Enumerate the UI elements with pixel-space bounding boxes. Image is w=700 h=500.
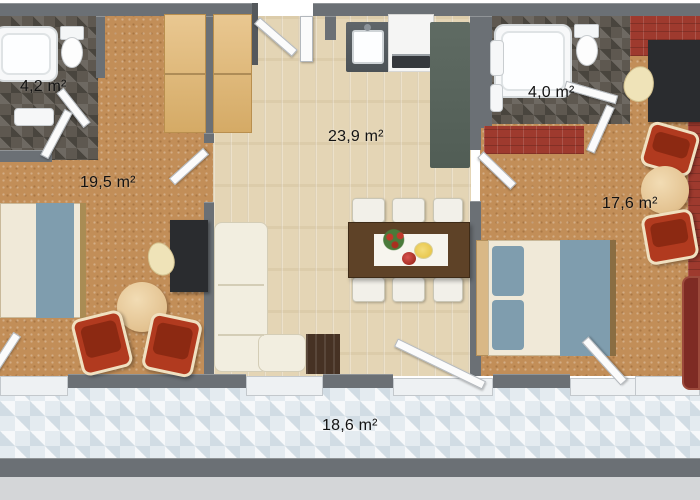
bowl-red [402,252,416,265]
terrace-window-sill-left [0,376,68,396]
bed-left-blanket [36,203,74,318]
sofa-seam-2 [218,334,264,336]
wall-bathL-right [96,16,105,78]
kitchen-faucet [364,24,371,31]
dining-chair-4 [352,277,385,302]
flower-bouquet [382,228,408,254]
wall-wardrobe-divider [206,16,213,133]
tv-cabinet [306,334,340,374]
room-label-bathroom-left: 4,2 m² [20,78,67,96]
sofa-cream-chaise [258,334,306,372]
wall-entry-stub [252,3,258,65]
washbasin-right-1 [490,40,504,76]
sofa-seam-1 [218,284,264,286]
dresser-right [648,40,700,122]
wall-living-bedR-upper [470,16,481,150]
dining-chair-2 [392,198,425,223]
bed-right-pillow-1 [492,246,524,296]
wall-bedL-living-upper [204,133,214,143]
dining-chair-5 [392,277,425,302]
wall-top-right [313,3,700,16]
room-label-bedroom-right: 17,6 m² [602,195,658,213]
desk-left [170,220,208,292]
exterior-ground [0,477,700,500]
wardrobe-left-2 [213,14,252,133]
bed-left-frame [80,203,86,318]
wall-terrace-1 [68,374,246,388]
dining-chair-6 [433,277,463,302]
wall-terrace-3 [493,374,570,388]
wardrobe-left-1 [164,14,206,133]
washbasin-left [14,108,54,126]
room-label-terrace: 18,6 m² [322,417,378,435]
terrace-window-sill-bedR [570,378,640,396]
wall-red-bathR-bottom [484,126,584,154]
wall-bottom [0,458,700,477]
kitchen-sink [352,30,384,64]
floor-plan: 4,2 m² 19,5 m² 23,9 m² 4,0 m² 17,6 m² 18… [0,0,700,500]
dining-chair-3 [433,198,463,223]
washbasin-right-2 [490,84,503,112]
plate-lemons [414,242,433,259]
bed-right-pillow-2 [492,300,524,350]
bathtub-left [0,26,58,82]
room-label-living-kitchen: 23,9 m² [328,128,384,146]
kitchen-tall-counter [430,22,470,168]
entry-door-leaf-2 [300,16,313,62]
toilet-left-bowl [61,37,83,68]
room-label-bathroom-right: 4,0 m² [528,84,575,102]
terrace-window-sill-center [246,376,323,396]
armchair-right-2 [640,208,700,266]
kitchen-oven-front [392,54,430,68]
wall-kitchen-stub [325,16,336,40]
sofa-maroon-right [682,276,700,390]
bed-right-frame [610,240,616,356]
dining-chair-1 [352,198,385,223]
wall-terrace-2 [323,374,393,388]
toilet-right-bowl [576,35,598,66]
room-label-bedroom-left: 19,5 m² [80,174,136,192]
